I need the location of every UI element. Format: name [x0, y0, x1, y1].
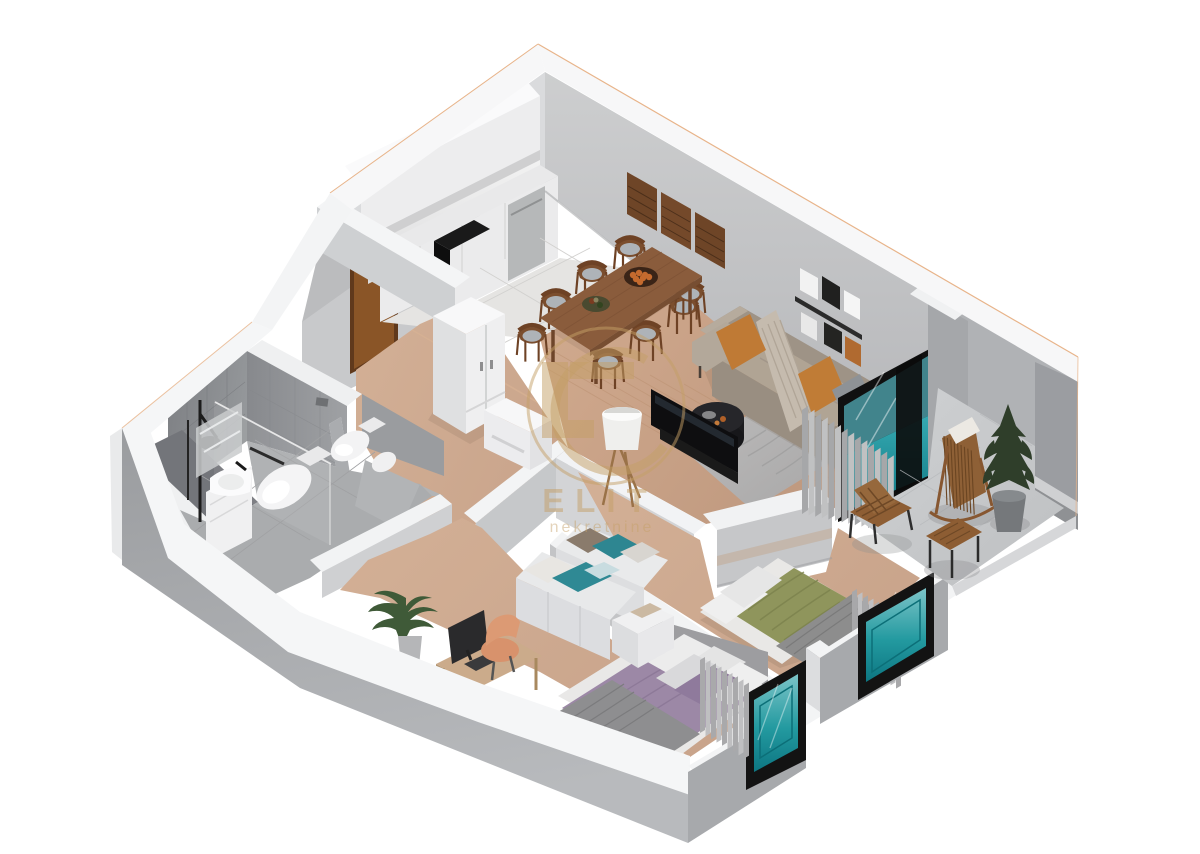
svg-text:ELIT: ELIT	[542, 482, 658, 519]
svg-text:nekretnine: nekretnine	[550, 519, 655, 536]
